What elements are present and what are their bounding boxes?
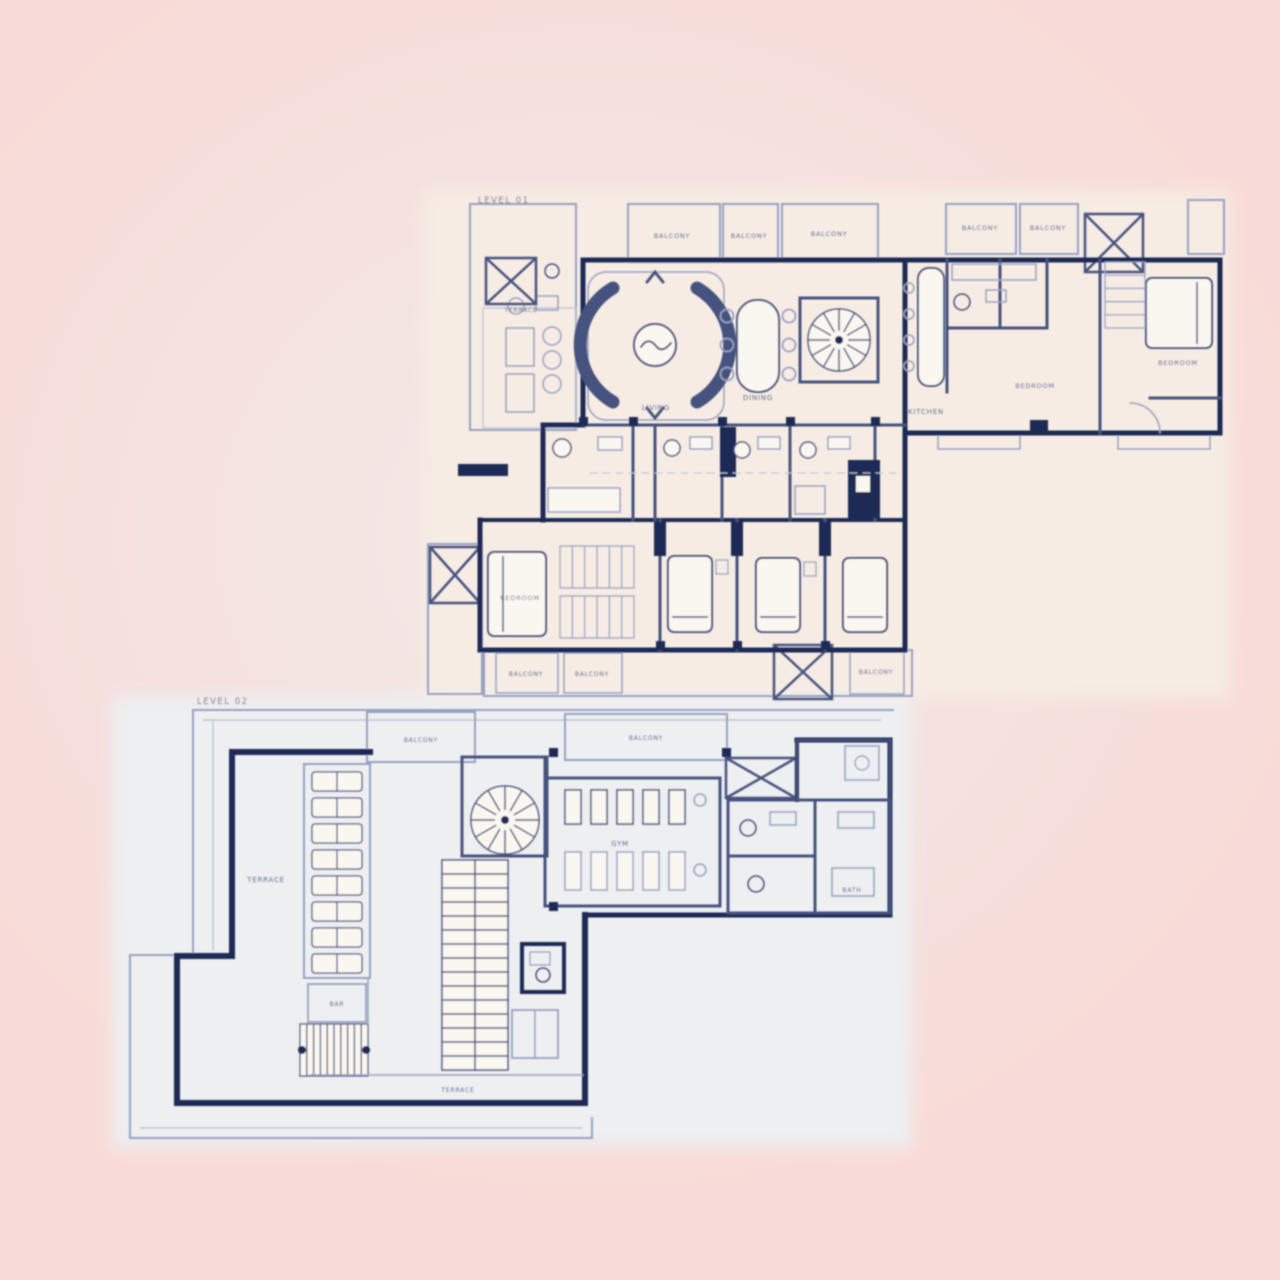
- column: [722, 748, 731, 757]
- wall-joint: [656, 641, 665, 650]
- room-label: BEDROOM: [1158, 359, 1198, 367]
- wc: [800, 442, 816, 458]
- newel: [298, 1046, 306, 1054]
- sink: [758, 437, 780, 449]
- newel: [362, 1046, 370, 1054]
- bed: [668, 556, 712, 632]
- gym-equipment: [565, 790, 581, 824]
- room-label: KITCHEN: [908, 408, 944, 416]
- floor-plan-drawing: LEVEL 01 LEVEL 02 BALCONYBALCONYBALCONYB…: [0, 0, 1280, 1280]
- wc: [553, 439, 571, 457]
- room-label: BALCONY: [629, 735, 663, 742]
- spiral-stair-center: [835, 336, 843, 344]
- sink: [690, 437, 712, 449]
- floor-plan-page: LEVEL 01 LEVEL 02 BALCONYBALCONYBALCONYB…: [0, 0, 1280, 1280]
- room-label: GYM: [611, 840, 629, 848]
- wc: [734, 442, 750, 458]
- wall-joint: [579, 417, 588, 426]
- room-label: TERRACE: [440, 1087, 474, 1094]
- wall-joint: [629, 417, 638, 426]
- room-label: BALCONY: [575, 671, 609, 678]
- door-leaf: [1030, 420, 1048, 433]
- bed: [756, 558, 800, 632]
- room-label: BALCONY: [962, 224, 999, 232]
- room-label: BALCONY: [654, 232, 691, 240]
- gym-equipment: [643, 852, 659, 890]
- shaft-dark-inner: [856, 476, 870, 492]
- sink: [598, 437, 622, 450]
- gym-equipment: [643, 790, 659, 824]
- wall-joint: [786, 417, 795, 426]
- room-label: LIVING: [642, 404, 670, 412]
- gym-equipment: [669, 790, 685, 824]
- wc: [664, 440, 680, 456]
- gym-equipment: [669, 852, 685, 890]
- bed: [1146, 278, 1212, 348]
- bathtub: [548, 488, 620, 512]
- gym-equipment: [617, 790, 633, 824]
- bed: [843, 558, 887, 632]
- room-label: BALCONY: [509, 671, 543, 678]
- wall-joint: [821, 641, 830, 650]
- room-label: BALCONY: [731, 232, 768, 240]
- room-label: TERRACE: [503, 307, 537, 314]
- gym-equipment: [617, 852, 633, 890]
- room-label: BATH: [842, 887, 861, 894]
- room-label: DINING: [743, 394, 773, 402]
- wall-joint: [733, 641, 742, 650]
- wall-joint: [871, 417, 880, 426]
- column: [549, 902, 558, 911]
- dining-table: [737, 300, 779, 392]
- room-label: BAR: [330, 1001, 345, 1008]
- column: [549, 748, 558, 757]
- lower-plan-caption: LEVEL 02: [197, 697, 249, 707]
- room-label: BEDROOM: [1015, 382, 1055, 390]
- gym-equipment: [565, 852, 581, 890]
- wall-joint: [718, 417, 727, 426]
- kitchen-island: [918, 268, 944, 386]
- room-label: BALCONY: [404, 737, 438, 744]
- wardrobe-chunk: [731, 522, 743, 556]
- gym-equipment: [591, 790, 607, 824]
- sink: [828, 437, 850, 449]
- gym-equipment: [591, 852, 607, 890]
- entry-bar: [458, 464, 508, 476]
- wardrobe-chunk: [654, 522, 666, 556]
- room-label: TERRACE: [246, 876, 285, 884]
- room-label: BALCONY: [859, 669, 893, 676]
- room-label: BALCONY: [811, 230, 848, 238]
- room-label: BALCONY: [1030, 224, 1067, 232]
- wardrobe-chunk: [819, 522, 831, 556]
- room-label: BEDROOM: [500, 594, 540, 602]
- spiral-stair-center: [501, 816, 509, 824]
